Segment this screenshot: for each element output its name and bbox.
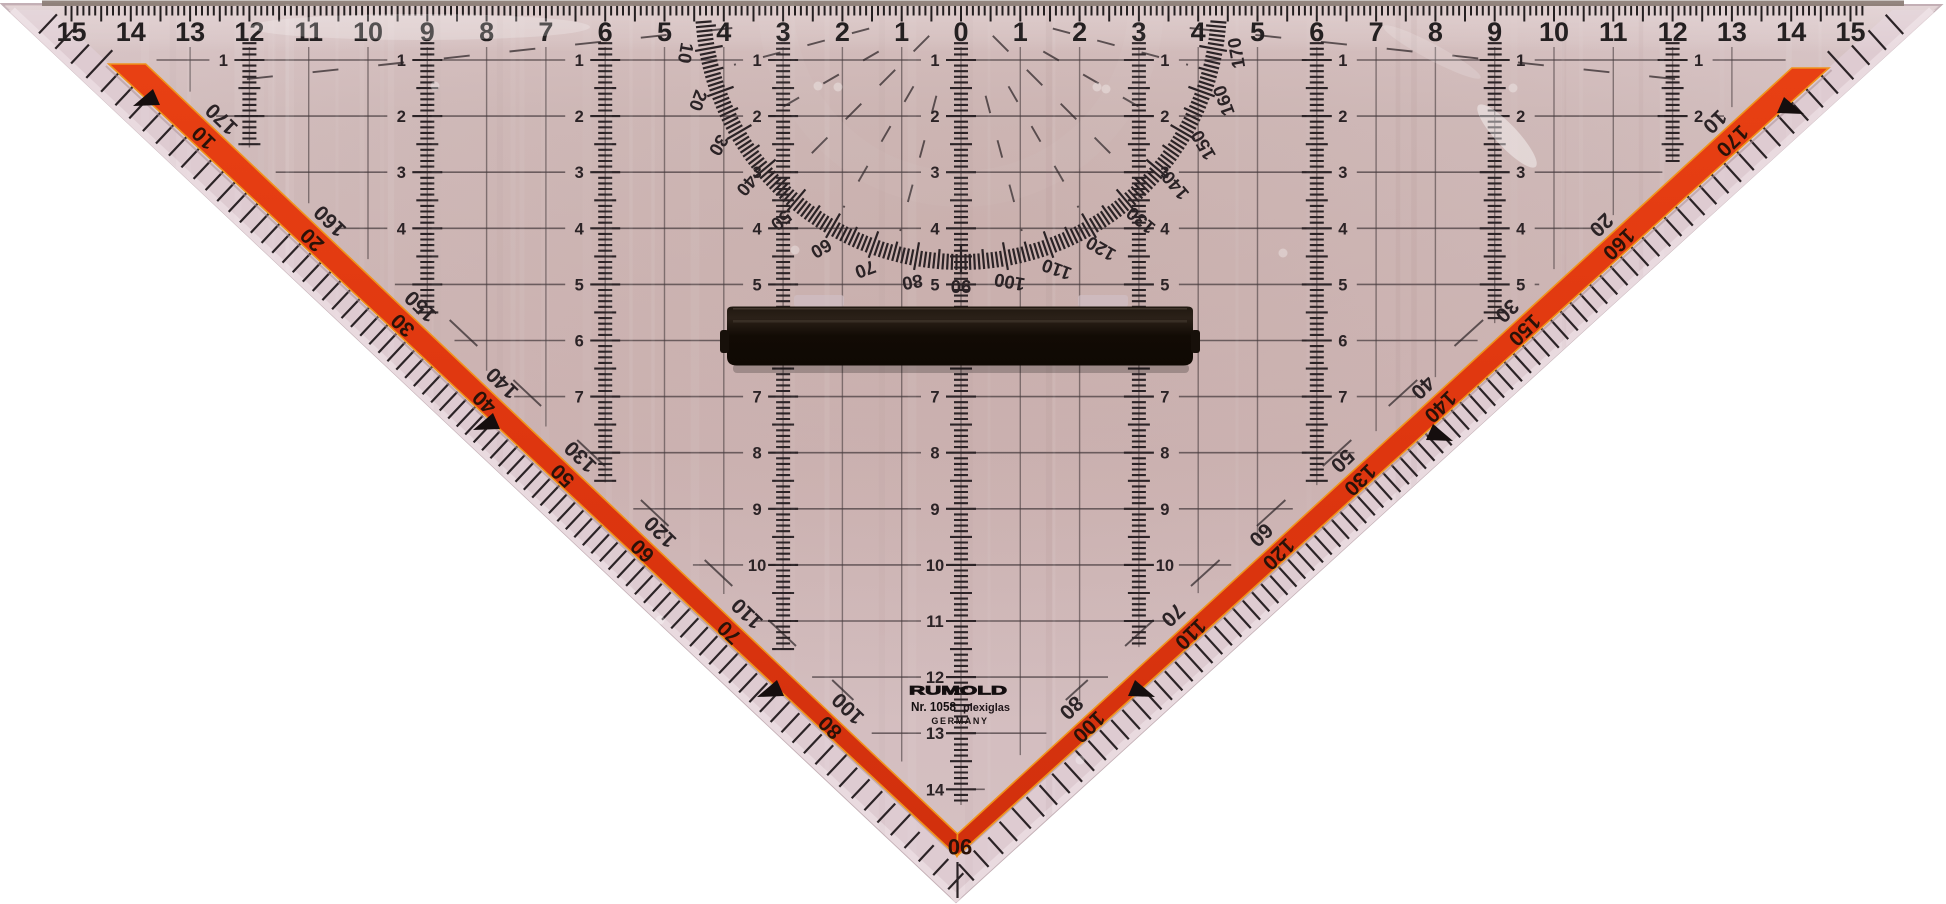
svg-text:14: 14 <box>116 17 146 47</box>
svg-text:7: 7 <box>575 389 584 407</box>
svg-text:5: 5 <box>753 276 762 294</box>
svg-text:2: 2 <box>1160 108 1169 126</box>
svg-text:5: 5 <box>930 276 939 294</box>
svg-text:2: 2 <box>1338 108 1347 126</box>
svg-text:15: 15 <box>56 17 86 47</box>
svg-text:1: 1 <box>1160 52 1169 70</box>
svg-text:13: 13 <box>175 17 205 47</box>
svg-text:8: 8 <box>1160 445 1169 463</box>
svg-text:1: 1 <box>753 52 762 70</box>
svg-text:5: 5 <box>1160 276 1169 294</box>
svg-text:2: 2 <box>1072 17 1087 47</box>
svg-text:4: 4 <box>1160 220 1170 238</box>
svg-text:9: 9 <box>1487 17 1502 47</box>
svg-text:1: 1 <box>1694 52 1703 70</box>
svg-text:5: 5 <box>1250 17 1265 47</box>
svg-text:10: 10 <box>1539 17 1569 47</box>
svg-text:7: 7 <box>1338 389 1347 407</box>
svg-text:RUMOLD: RUMOLD <box>909 684 1008 698</box>
svg-text:10: 10 <box>674 41 698 65</box>
svg-text:14: 14 <box>926 781 945 799</box>
svg-text:2: 2 <box>753 108 762 126</box>
svg-text:9: 9 <box>1160 501 1169 519</box>
svg-text:4: 4 <box>1338 220 1348 238</box>
svg-text:1: 1 <box>1338 52 1347 70</box>
svg-text:80: 80 <box>901 270 925 294</box>
svg-text:10: 10 <box>1156 557 1174 575</box>
svg-text:7: 7 <box>1369 17 1384 47</box>
svg-text:90: 90 <box>951 276 972 297</box>
svg-text:1: 1 <box>894 17 909 47</box>
svg-text:6: 6 <box>1309 17 1324 47</box>
svg-text:6: 6 <box>598 17 613 47</box>
svg-text:8: 8 <box>753 445 762 463</box>
svg-text:1: 1 <box>397 52 406 70</box>
svg-text:4: 4 <box>397 220 407 238</box>
svg-text:5: 5 <box>1338 276 1347 294</box>
svg-text:15: 15 <box>1835 17 1865 47</box>
svg-text:12: 12 <box>1658 17 1688 47</box>
svg-text:3: 3 <box>575 164 584 182</box>
svg-text:9: 9 <box>753 501 762 519</box>
svg-text:2: 2 <box>835 17 850 47</box>
svg-text:13: 13 <box>926 725 944 743</box>
svg-text:1: 1 <box>575 52 584 70</box>
svg-text:11: 11 <box>1599 17 1628 47</box>
svg-text:7: 7 <box>930 389 939 407</box>
svg-text:10: 10 <box>748 557 766 575</box>
svg-text:4: 4 <box>1516 220 1526 238</box>
svg-text:8: 8 <box>930 445 939 463</box>
svg-text:9: 9 <box>930 501 939 519</box>
svg-text:4: 4 <box>930 220 940 238</box>
svg-text:90: 90 <box>948 834 972 859</box>
svg-text:2: 2 <box>397 108 406 126</box>
svg-text:1: 1 <box>1013 17 1028 47</box>
svg-text:11: 11 <box>926 613 943 631</box>
svg-text:3: 3 <box>397 164 406 182</box>
svg-text:3: 3 <box>1338 164 1347 182</box>
svg-text:13: 13 <box>1717 17 1747 47</box>
svg-text:4: 4 <box>716 17 731 47</box>
svg-text:1: 1 <box>219 52 228 70</box>
svg-text:2: 2 <box>575 108 584 126</box>
svg-text:GERMANY: GERMANY <box>931 716 988 726</box>
svg-text:plexiglas: plexiglas <box>963 702 1010 714</box>
svg-text:14: 14 <box>1776 17 1806 47</box>
svg-text:4: 4 <box>1191 17 1206 47</box>
svg-text:5: 5 <box>575 276 584 294</box>
svg-text:7: 7 <box>753 389 762 407</box>
svg-text:6: 6 <box>575 333 584 351</box>
svg-text:10: 10 <box>926 557 944 575</box>
svg-text:Nr. 1058: Nr. 1058 <box>911 699 956 714</box>
svg-text:5: 5 <box>657 17 672 47</box>
svg-text:1: 1 <box>930 52 939 70</box>
svg-text:7: 7 <box>1160 389 1169 407</box>
svg-text:12: 12 <box>234 17 264 47</box>
svg-text:4: 4 <box>753 220 763 238</box>
svg-text:6: 6 <box>1338 333 1347 351</box>
svg-text:0: 0 <box>953 17 968 47</box>
